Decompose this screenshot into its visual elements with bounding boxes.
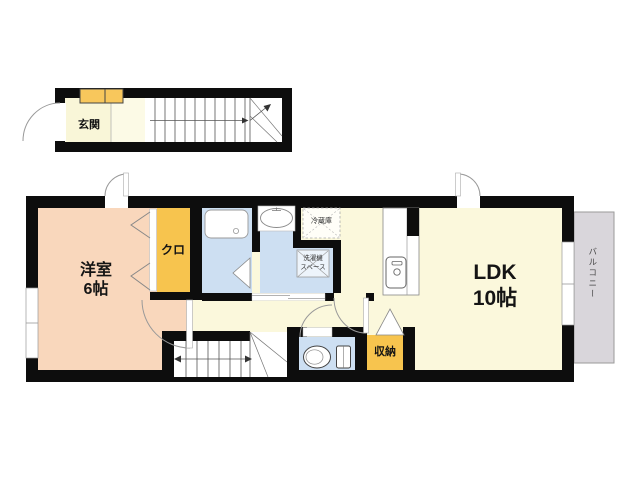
west-room-name: 洋室 (40, 262, 152, 280)
toilet-icon (304, 346, 351, 368)
floor-plan: 玄関 洋室 6帖 クロ 冷蔵庫 洗濯機 スペース LDK 10帖 収納 バルコニ… (0, 0, 640, 480)
wall (202, 293, 252, 301)
kitchen-counter (383, 208, 419, 295)
ldk-size: 10帖 (430, 287, 560, 311)
washbasin (258, 206, 295, 231)
entrance-door-arc (23, 103, 60, 141)
lower-stairs (162, 331, 287, 382)
genkan-step (111, 98, 145, 142)
washer-label-line2: スペース (297, 264, 329, 271)
washroom-sliding-door (252, 294, 325, 301)
west-room-hall-door-leaf (187, 300, 193, 348)
wall (293, 240, 341, 248)
hall-ldk-doorway (334, 293, 366, 301)
floor-plan-drawing (0, 0, 640, 480)
toilet-door-leaf (303, 328, 332, 337)
west-room-entry-gap (105, 196, 128, 208)
ldk-door-arc (458, 174, 480, 196)
kitchen-wall-stub (407, 208, 419, 236)
west-room-size: 6帖 (40, 281, 152, 299)
ldk-door-leaf (456, 173, 461, 196)
bathtub (205, 210, 248, 238)
wall (325, 293, 334, 301)
washer-label-line1: 洗濯機 (297, 255, 329, 262)
balcony-window (562, 242, 574, 325)
west-room-door-leaf (124, 173, 129, 196)
closet-label: クロ (154, 244, 192, 258)
ldk-name: LDK (430, 261, 560, 285)
fridge-label: 冷蔵庫 (303, 218, 340, 226)
hall-ldk-door-leaf (364, 298, 369, 333)
wall (150, 292, 202, 300)
balcony-label: バルコニー (587, 247, 597, 300)
shoe-cabinet (80, 89, 123, 103)
storage-label: 収納 (367, 346, 403, 359)
ldk-entry-gap (457, 196, 480, 208)
wall (333, 248, 341, 293)
upper-stairs (145, 98, 282, 142)
genkan-label: 玄関 (64, 119, 114, 132)
